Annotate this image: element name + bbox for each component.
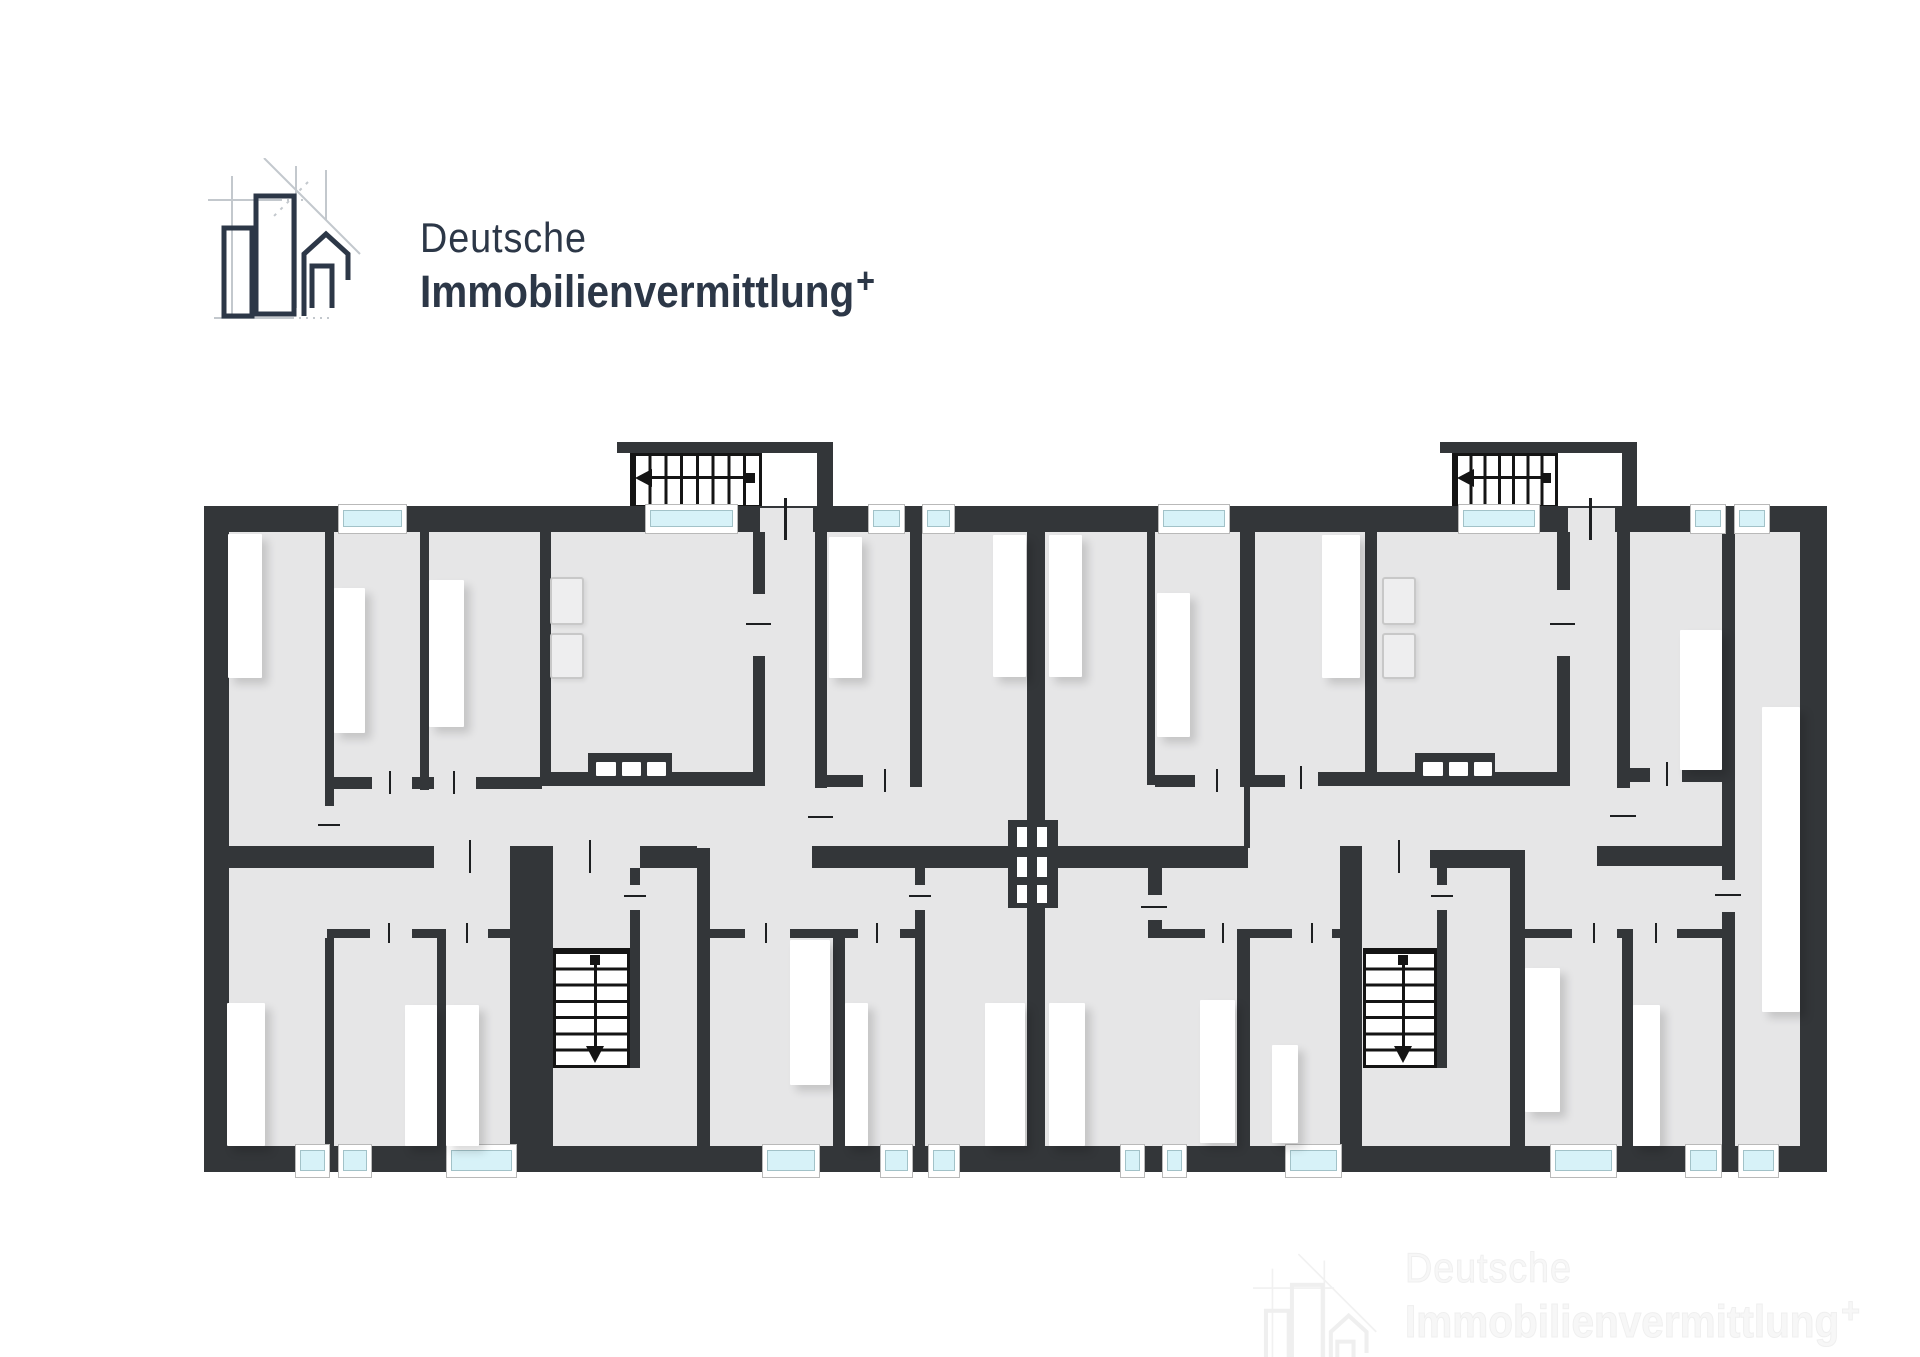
wall bbox=[325, 938, 334, 1146]
staircase bbox=[553, 948, 630, 1068]
door-swing-tick bbox=[1431, 895, 1453, 897]
wall bbox=[640, 846, 697, 868]
window-glass bbox=[1739, 510, 1765, 527]
stair-direction-line bbox=[1402, 955, 1405, 1053]
stair-direction-line bbox=[639, 476, 747, 479]
window-glass bbox=[1555, 1150, 1612, 1171]
window-glass bbox=[1125, 1150, 1140, 1171]
wall bbox=[1244, 785, 1250, 848]
window bbox=[880, 1144, 913, 1178]
wall bbox=[325, 777, 372, 789]
wall bbox=[1617, 929, 1633, 938]
window-glass bbox=[767, 1150, 815, 1171]
window-glass bbox=[1167, 1150, 1182, 1171]
window-glass bbox=[1743, 1150, 1774, 1171]
stair-arrow-origin bbox=[1541, 473, 1551, 483]
wall bbox=[1557, 656, 1570, 776]
window-glass bbox=[1290, 1150, 1337, 1171]
door-swing-tick bbox=[1655, 923, 1657, 943]
furniture-block bbox=[1049, 535, 1082, 677]
wall bbox=[630, 910, 640, 1068]
counter-burner bbox=[647, 762, 666, 776]
window bbox=[868, 504, 905, 534]
door-swing-tick bbox=[1300, 766, 1302, 789]
wall bbox=[1240, 532, 1255, 785]
watermark-plus: + bbox=[1841, 1290, 1860, 1331]
window bbox=[295, 1144, 330, 1178]
window-glass bbox=[885, 1150, 908, 1171]
furniture-block bbox=[405, 1005, 437, 1146]
stair-arrow-origin bbox=[1398, 955, 1408, 965]
counter-burner bbox=[1474, 762, 1492, 776]
watermark-line1: Deutsche bbox=[1405, 1244, 1572, 1292]
furniture-block bbox=[1762, 707, 1800, 1012]
window bbox=[1734, 504, 1770, 534]
wall bbox=[204, 846, 434, 868]
wall bbox=[1722, 912, 1735, 1146]
watermark-house-sketch-icon bbox=[1253, 1242, 1403, 1357]
wall bbox=[1365, 532, 1377, 776]
chimney-flue bbox=[1017, 827, 1027, 847]
wall bbox=[1525, 929, 1572, 938]
wall bbox=[812, 846, 1008, 868]
furniture-block bbox=[334, 588, 365, 733]
watermark-line2: Immobilienvermittlung+ bbox=[1405, 1290, 1860, 1348]
stair-arrow-origin bbox=[745, 473, 755, 483]
wall bbox=[1240, 775, 1285, 787]
door-swing-tick bbox=[466, 923, 468, 943]
window-glass bbox=[927, 510, 950, 527]
wall bbox=[1155, 775, 1195, 787]
furniture-block bbox=[1322, 535, 1360, 678]
furniture-block bbox=[1272, 1045, 1298, 1143]
door-swing-tick bbox=[1610, 815, 1636, 817]
window bbox=[1285, 1144, 1342, 1178]
counter-burner bbox=[622, 762, 641, 776]
wall bbox=[709, 929, 745, 938]
counter-burner bbox=[1449, 762, 1468, 776]
wall bbox=[204, 506, 229, 1172]
wall bbox=[412, 777, 434, 789]
wall bbox=[1162, 929, 1205, 938]
wall bbox=[476, 777, 542, 789]
door-swing-tick bbox=[388, 923, 390, 943]
staircase bbox=[1452, 453, 1558, 508]
appliance bbox=[1382, 577, 1416, 625]
floor-plan bbox=[0, 0, 1920, 1357]
wall bbox=[1437, 868, 1447, 885]
furniture-block bbox=[1525, 968, 1560, 1112]
window-glass bbox=[1163, 510, 1225, 527]
wall bbox=[1557, 532, 1570, 590]
window-glass bbox=[343, 1150, 367, 1171]
door-swing-tick bbox=[784, 498, 787, 540]
wall bbox=[617, 442, 833, 453]
wall bbox=[833, 938, 845, 1146]
furniture-block bbox=[790, 940, 830, 1085]
wall bbox=[910, 532, 922, 787]
window-glass bbox=[1695, 510, 1721, 527]
wall bbox=[1722, 782, 1735, 880]
appliance bbox=[550, 577, 584, 625]
wall bbox=[1800, 506, 1827, 1172]
window-glass bbox=[343, 510, 402, 527]
appliance bbox=[550, 633, 584, 679]
window bbox=[928, 1144, 960, 1178]
furniture-block bbox=[227, 1003, 265, 1146]
window-glass bbox=[933, 1150, 955, 1171]
wall bbox=[817, 442, 833, 512]
furniture-block bbox=[1157, 593, 1190, 737]
window bbox=[922, 504, 955, 534]
wall bbox=[1332, 929, 1362, 938]
stair-direction-line bbox=[594, 955, 597, 1053]
door-swing-tick bbox=[909, 895, 931, 897]
window bbox=[1458, 504, 1540, 534]
window bbox=[446, 1144, 517, 1178]
window-glass bbox=[1690, 1150, 1717, 1171]
door-swing-tick bbox=[469, 840, 471, 873]
wall bbox=[510, 846, 553, 1146]
window bbox=[1120, 1144, 1145, 1178]
stair-arrow-icon bbox=[1457, 469, 1474, 487]
window bbox=[1158, 504, 1230, 534]
staircase bbox=[630, 453, 762, 508]
door-swing-tick bbox=[1216, 769, 1218, 792]
window bbox=[1690, 504, 1726, 534]
wall bbox=[1148, 920, 1162, 938]
window-glass bbox=[1463, 510, 1535, 527]
wall bbox=[1147, 532, 1155, 785]
wall bbox=[327, 929, 370, 938]
wall bbox=[420, 532, 429, 790]
door-swing-tick bbox=[624, 895, 646, 897]
stair-arrow-icon bbox=[1394, 1046, 1412, 1063]
wall bbox=[1237, 929, 1250, 1146]
wall bbox=[790, 929, 858, 938]
wall bbox=[815, 775, 863, 787]
wall bbox=[1437, 910, 1447, 1068]
wall bbox=[1058, 846, 1248, 868]
wall bbox=[1630, 768, 1650, 782]
window bbox=[338, 1144, 372, 1178]
wall bbox=[630, 868, 640, 885]
window bbox=[1738, 1144, 1779, 1178]
furniture-block bbox=[993, 535, 1026, 677]
chimney-flue bbox=[1037, 827, 1047, 847]
wall bbox=[1622, 938, 1633, 1146]
window-glass bbox=[300, 1150, 325, 1171]
wall bbox=[488, 929, 517, 938]
furniture-block bbox=[228, 534, 262, 678]
door-swing-tick bbox=[1141, 906, 1167, 908]
furniture-block bbox=[1049, 1003, 1085, 1146]
wall bbox=[900, 929, 915, 938]
door-swing-tick bbox=[389, 771, 391, 794]
counter-burner bbox=[1423, 762, 1443, 776]
staircase bbox=[1363, 948, 1437, 1068]
window-glass bbox=[451, 1150, 512, 1171]
window bbox=[1550, 1144, 1617, 1178]
door-swing-tick bbox=[808, 816, 833, 818]
furniture-block bbox=[446, 1005, 479, 1146]
wall bbox=[412, 929, 446, 938]
wall bbox=[1148, 868, 1162, 895]
wall bbox=[1677, 929, 1730, 938]
door-swing-tick bbox=[1715, 894, 1741, 896]
wall bbox=[1682, 768, 1735, 782]
appliance bbox=[1382, 633, 1416, 679]
watermark-logo: Deutsche Immobilienvermittlung+ bbox=[1253, 1238, 1920, 1357]
door-swing-tick bbox=[1589, 498, 1592, 540]
door-swing-tick bbox=[1550, 623, 1575, 625]
chimney-flue bbox=[1037, 885, 1047, 903]
chimney-block bbox=[1008, 820, 1058, 908]
furniture-block bbox=[1633, 1005, 1660, 1146]
door-swing-tick bbox=[1398, 840, 1400, 873]
wall bbox=[815, 532, 827, 788]
furniture-block bbox=[829, 537, 862, 678]
wall bbox=[697, 848, 710, 1146]
door-swing-tick bbox=[1666, 762, 1668, 786]
window-glass bbox=[650, 510, 733, 527]
window bbox=[338, 504, 407, 534]
chimney-flue bbox=[1017, 857, 1027, 877]
wall bbox=[915, 868, 925, 885]
wall bbox=[437, 938, 446, 1146]
wall bbox=[1510, 852, 1525, 1146]
door-swing-tick bbox=[884, 769, 886, 792]
window bbox=[645, 504, 738, 534]
wall bbox=[1340, 846, 1362, 1146]
wall bbox=[1622, 442, 1637, 512]
window bbox=[762, 1144, 820, 1178]
wall bbox=[1617, 532, 1630, 788]
door-swing-tick bbox=[1593, 923, 1595, 943]
door-swing-tick bbox=[318, 824, 340, 826]
wall bbox=[753, 656, 765, 776]
furniture-block bbox=[985, 1003, 1025, 1146]
door-swing-tick bbox=[589, 840, 591, 873]
wall bbox=[325, 532, 334, 806]
wall bbox=[1440, 442, 1637, 453]
wall bbox=[1027, 908, 1045, 1146]
door-swing-tick bbox=[1311, 923, 1313, 943]
furniture-block bbox=[1200, 1000, 1235, 1143]
stair-arrow-origin bbox=[590, 955, 600, 965]
window-glass bbox=[873, 510, 900, 527]
furniture-block bbox=[1680, 630, 1722, 770]
wall bbox=[1597, 846, 1722, 866]
window bbox=[1162, 1144, 1187, 1178]
furniture-block bbox=[845, 1003, 868, 1146]
wall bbox=[1250, 929, 1292, 938]
window bbox=[1685, 1144, 1722, 1178]
door-swing-tick bbox=[765, 923, 767, 943]
stair-arrow-icon bbox=[586, 1046, 604, 1063]
counter-burner bbox=[596, 762, 616, 776]
door-swing-tick bbox=[453, 771, 455, 794]
door-swing-tick bbox=[746, 623, 771, 625]
door-swing-tick bbox=[876, 923, 878, 943]
wall bbox=[1722, 532, 1735, 772]
chimney-flue bbox=[1037, 857, 1047, 877]
chimney-flue bbox=[1017, 885, 1027, 903]
stair-arrow-icon bbox=[635, 469, 652, 487]
door-swing-tick bbox=[1222, 923, 1224, 943]
wall bbox=[753, 532, 765, 594]
wall bbox=[915, 910, 925, 1146]
furniture-block bbox=[429, 580, 464, 727]
wall bbox=[1027, 532, 1045, 822]
